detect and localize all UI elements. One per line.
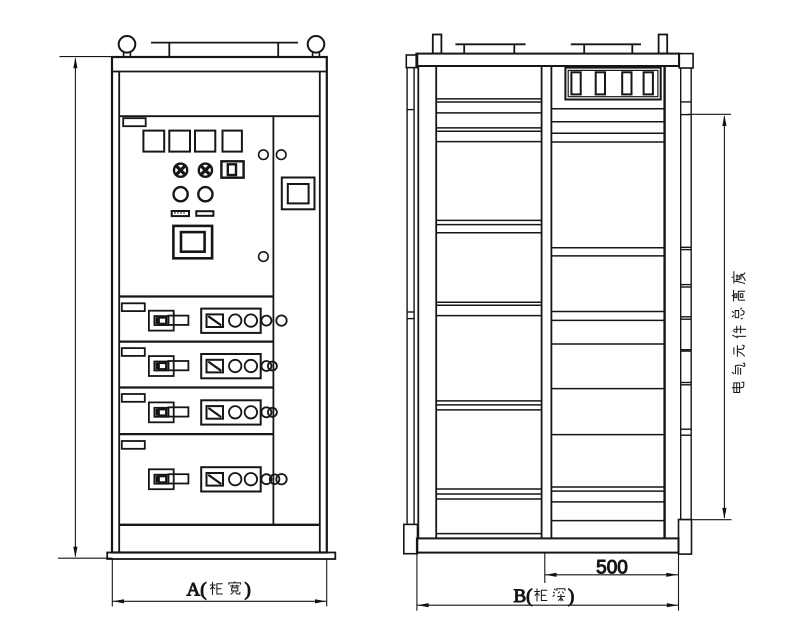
svg-text:): ) xyxy=(245,580,251,601)
svg-text:500: 500 xyxy=(596,558,628,579)
svg-text:A(: A( xyxy=(187,580,207,601)
svg-text:B(: B( xyxy=(514,586,533,607)
svg-text:): ) xyxy=(568,586,574,607)
